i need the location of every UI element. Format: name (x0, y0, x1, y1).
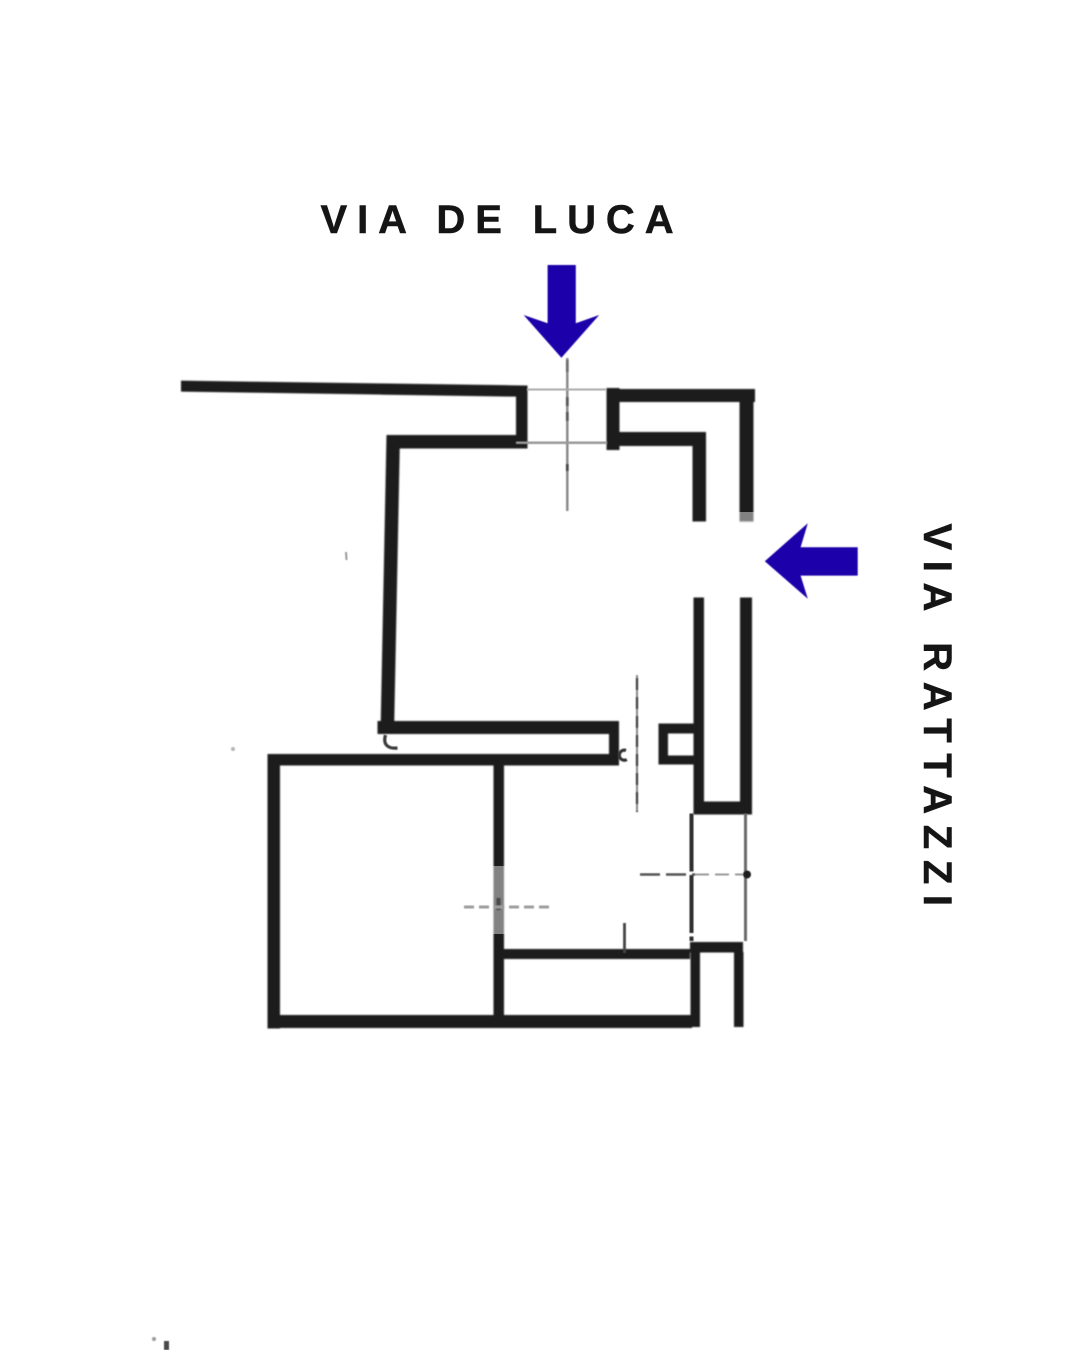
svg-text:VIA RATTAZZI: VIA RATTAZZI (915, 524, 959, 917)
svg-text:VIA DE LUCA: VIA DE LUCA (321, 198, 684, 242)
